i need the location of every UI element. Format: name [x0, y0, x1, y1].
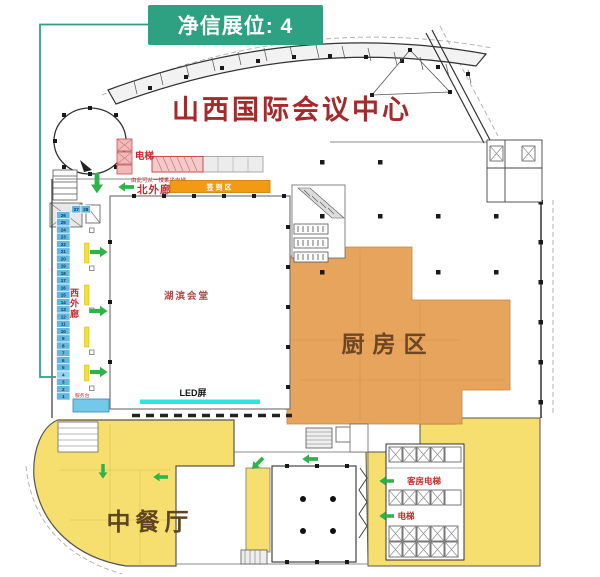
round-hall [53, 106, 127, 176]
restaurant-strip [246, 468, 270, 552]
booth-number: 16 [61, 285, 67, 290]
booth-number: 1 [62, 394, 65, 399]
booth-number: 13 [61, 307, 67, 312]
checkin-zone: 签到区 [170, 181, 270, 193]
kitchen-label: 厨房区 [342, 331, 435, 357]
booth-number: 9 [62, 336, 65, 341]
arrow-right-icon [90, 367, 108, 377]
booth-number: 15 [61, 293, 67, 298]
booth-number: 4 [62, 372, 65, 377]
booth-number: 18 [61, 271, 67, 276]
west-corridor-label: 西 外 廊 [69, 288, 82, 319]
floorplan-page: 中餐厅 厨房区 湖滨会堂 LED屏 [0, 0, 600, 577]
led-screen-bar [140, 400, 260, 405]
booth-number: 6 [62, 358, 65, 363]
booth-number: 12 [61, 314, 67, 319]
booth-number: 5 [62, 365, 65, 370]
booth-callout-badge: 净信展位: 4 [148, 5, 323, 45]
south-lobby [272, 464, 367, 564]
north-elevator: 电梯 [117, 139, 155, 174]
floorplan-map: 中餐厅 厨房区 湖滨会堂 LED屏 [0, 0, 600, 577]
booth-number: 11 [61, 322, 66, 327]
lakeside-hall: 湖滨会堂 LED屏 [108, 194, 292, 416]
service-desk [73, 399, 109, 412]
arrow-right-icon [90, 247, 108, 257]
booth-number: 20 [61, 256, 67, 261]
hall-label: 湖滨会堂 [164, 290, 210, 302]
booth-number: 19 [61, 264, 67, 269]
booth-number: 3 [62, 380, 65, 385]
checkin-label: 签到区 [206, 183, 234, 192]
booth-number: 10 [61, 329, 67, 334]
northeast-corner-rooms [487, 140, 542, 202]
booth-number: 27 [74, 207, 80, 212]
south-elevator-label: 电梯 [397, 511, 415, 521]
north-corridor-label: 北外廊 [137, 183, 172, 196]
guest-elevator-label: 客房电梯 [406, 476, 442, 486]
booth-number: 2 [62, 387, 65, 392]
arrow-left-icon [302, 454, 318, 463]
stage-area [152, 157, 263, 173]
booth-number: 22 [61, 242, 67, 247]
booth-number: 28 [83, 207, 89, 212]
booth-number: 7 [62, 351, 65, 356]
service-desk-label: 服务台 [75, 392, 90, 399]
building-title: 山西国际会议中心 [172, 95, 412, 125]
booth-number: 21 [61, 249, 67, 254]
southeast-elevator-block: 客房电梯 电梯 [386, 444, 464, 560]
booth-number: 14 [61, 300, 67, 305]
escalator-block [292, 185, 345, 262]
booth-number: 26 [61, 213, 67, 218]
arrow-right-icon [90, 306, 108, 316]
booth-number: 25 [61, 220, 67, 225]
booth-number: 17 [61, 278, 67, 283]
arrow-down-icon [91, 173, 103, 193]
booth-number: 24 [61, 227, 67, 232]
north-elevator-label: 电梯 [135, 150, 155, 162]
corridor-door-bars [85, 243, 90, 381]
booth-number: 23 [61, 235, 67, 240]
restaurant-label: 中餐厅 [107, 509, 194, 536]
led-screen-label: LED屏 [179, 388, 206, 398]
booth-number: 8 [62, 343, 65, 348]
